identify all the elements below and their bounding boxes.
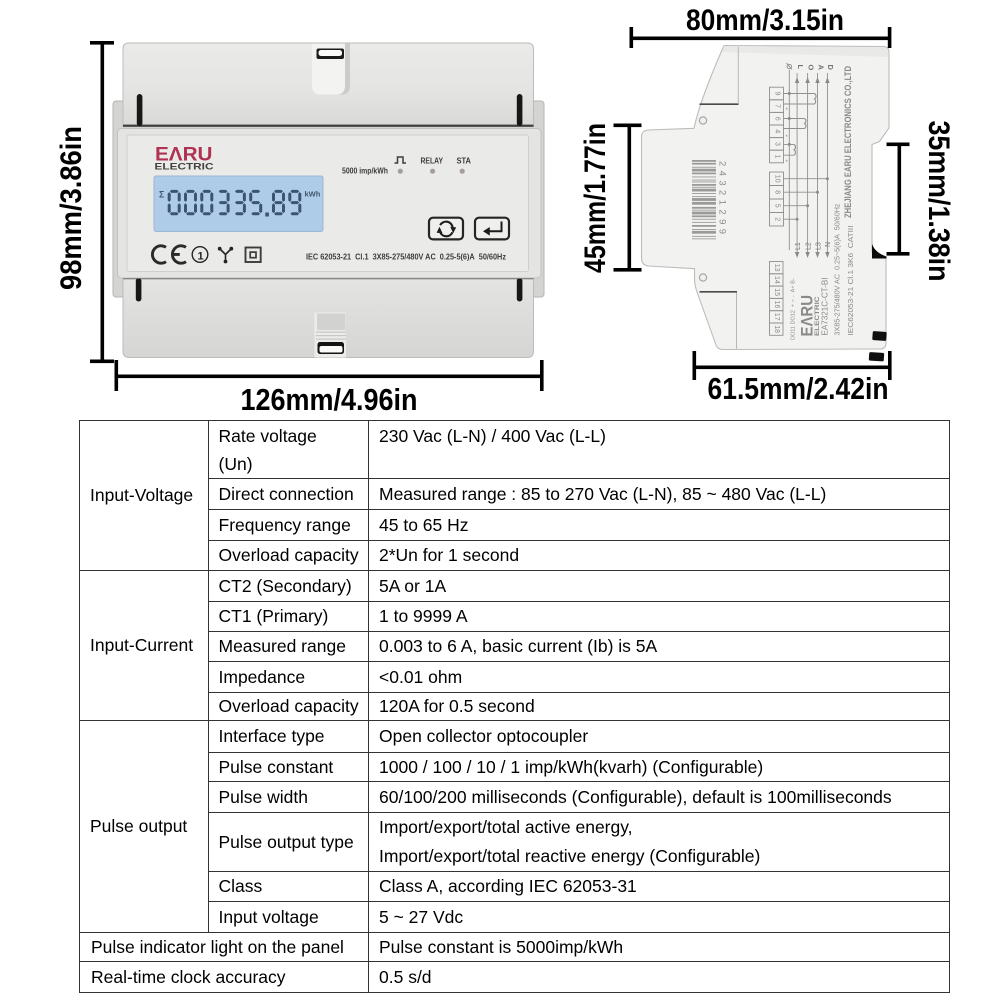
svg-text:8: 8 bbox=[774, 190, 781, 194]
svg-text:3X85-275/480V AC 0.25~5(6)A: 3X85-275/480V AC 0.25~5(6)A 50/60Hz bbox=[835, 203, 842, 336]
svg-text:15: 15 bbox=[773, 288, 780, 296]
svg-text:IEC 62053-21 Cl.1 3X85-275/4: IEC 62053-21 Cl.1 3X85-275/480V AC 0.25-… bbox=[306, 253, 506, 262]
svg-text:14: 14 bbox=[773, 276, 780, 284]
svg-text:EA7321C-CT-BI: EA7321C-CT-BI bbox=[820, 278, 829, 336]
svg-text:kWh: kWh bbox=[305, 190, 321, 199]
svg-text:16: 16 bbox=[773, 301, 780, 309]
svg-text:2: 2 bbox=[774, 217, 781, 221]
svg-text:ELECTRIC: ELECTRIC bbox=[155, 162, 215, 172]
svg-text:13: 13 bbox=[773, 264, 780, 272]
svg-text:98mm/3.86in: 98mm/3.86in bbox=[55, 126, 88, 290]
svg-text:80mm/3.15in: 80mm/3.15in bbox=[686, 4, 844, 37]
svg-text:126mm/4.96in: 126mm/4.96in bbox=[241, 382, 418, 417]
svg-text:Σ: Σ bbox=[159, 190, 165, 200]
svg-text:DO11 DO12 + ⌢ - A+ B-: DO11 DO12 + ⌢ - A+ B- bbox=[791, 278, 797, 340]
svg-text:D: D bbox=[826, 65, 835, 71]
svg-text:7: 7 bbox=[774, 104, 781, 108]
svg-text:1: 1 bbox=[198, 251, 204, 263]
svg-text:L3: L3 bbox=[815, 242, 822, 250]
svg-text:6: 6 bbox=[774, 117, 781, 121]
svg-text:4: 4 bbox=[774, 129, 781, 133]
svg-text:17: 17 bbox=[773, 313, 780, 321]
svg-text:1: 1 bbox=[774, 155, 781, 159]
svg-text:3: 3 bbox=[774, 142, 781, 146]
svg-text:35mm/1.38in: 35mm/1.38in bbox=[922, 121, 955, 282]
svg-text:45mm/1.77in: 45mm/1.77in bbox=[579, 123, 612, 273]
svg-text:ZHEJIANG EARU ELECTRONICS CO.,: ZHEJIANG EARU ELECTRONICS CO.,LTD bbox=[843, 66, 853, 218]
svg-text:RELAY: RELAY bbox=[421, 157, 444, 166]
svg-text:O: O bbox=[806, 65, 815, 71]
svg-text:IEC62053-21 Cl.1 3K6 CATIII: IEC62053-21 Cl.1 3K6 CATIII bbox=[848, 225, 855, 335]
svg-text:STA: STA bbox=[457, 157, 472, 166]
svg-text:A: A bbox=[816, 65, 825, 71]
svg-text:10: 10 bbox=[774, 175, 781, 183]
svg-text:9: 9 bbox=[774, 92, 781, 96]
svg-text:24321299: 24321299 bbox=[717, 161, 728, 238]
svg-text:18: 18 bbox=[773, 325, 780, 333]
svg-text:61.5mm/2.42in: 61.5mm/2.42in bbox=[708, 371, 889, 406]
svg-text:5: 5 bbox=[774, 204, 781, 208]
svg-text:L2: L2 bbox=[805, 242, 812, 250]
svg-text:5000 imp/kWh: 5000 imp/kWh bbox=[342, 167, 388, 176]
svg-text:L: L bbox=[796, 65, 805, 70]
svg-text:L1: L1 bbox=[795, 242, 802, 250]
svg-text:N: N bbox=[825, 242, 832, 247]
